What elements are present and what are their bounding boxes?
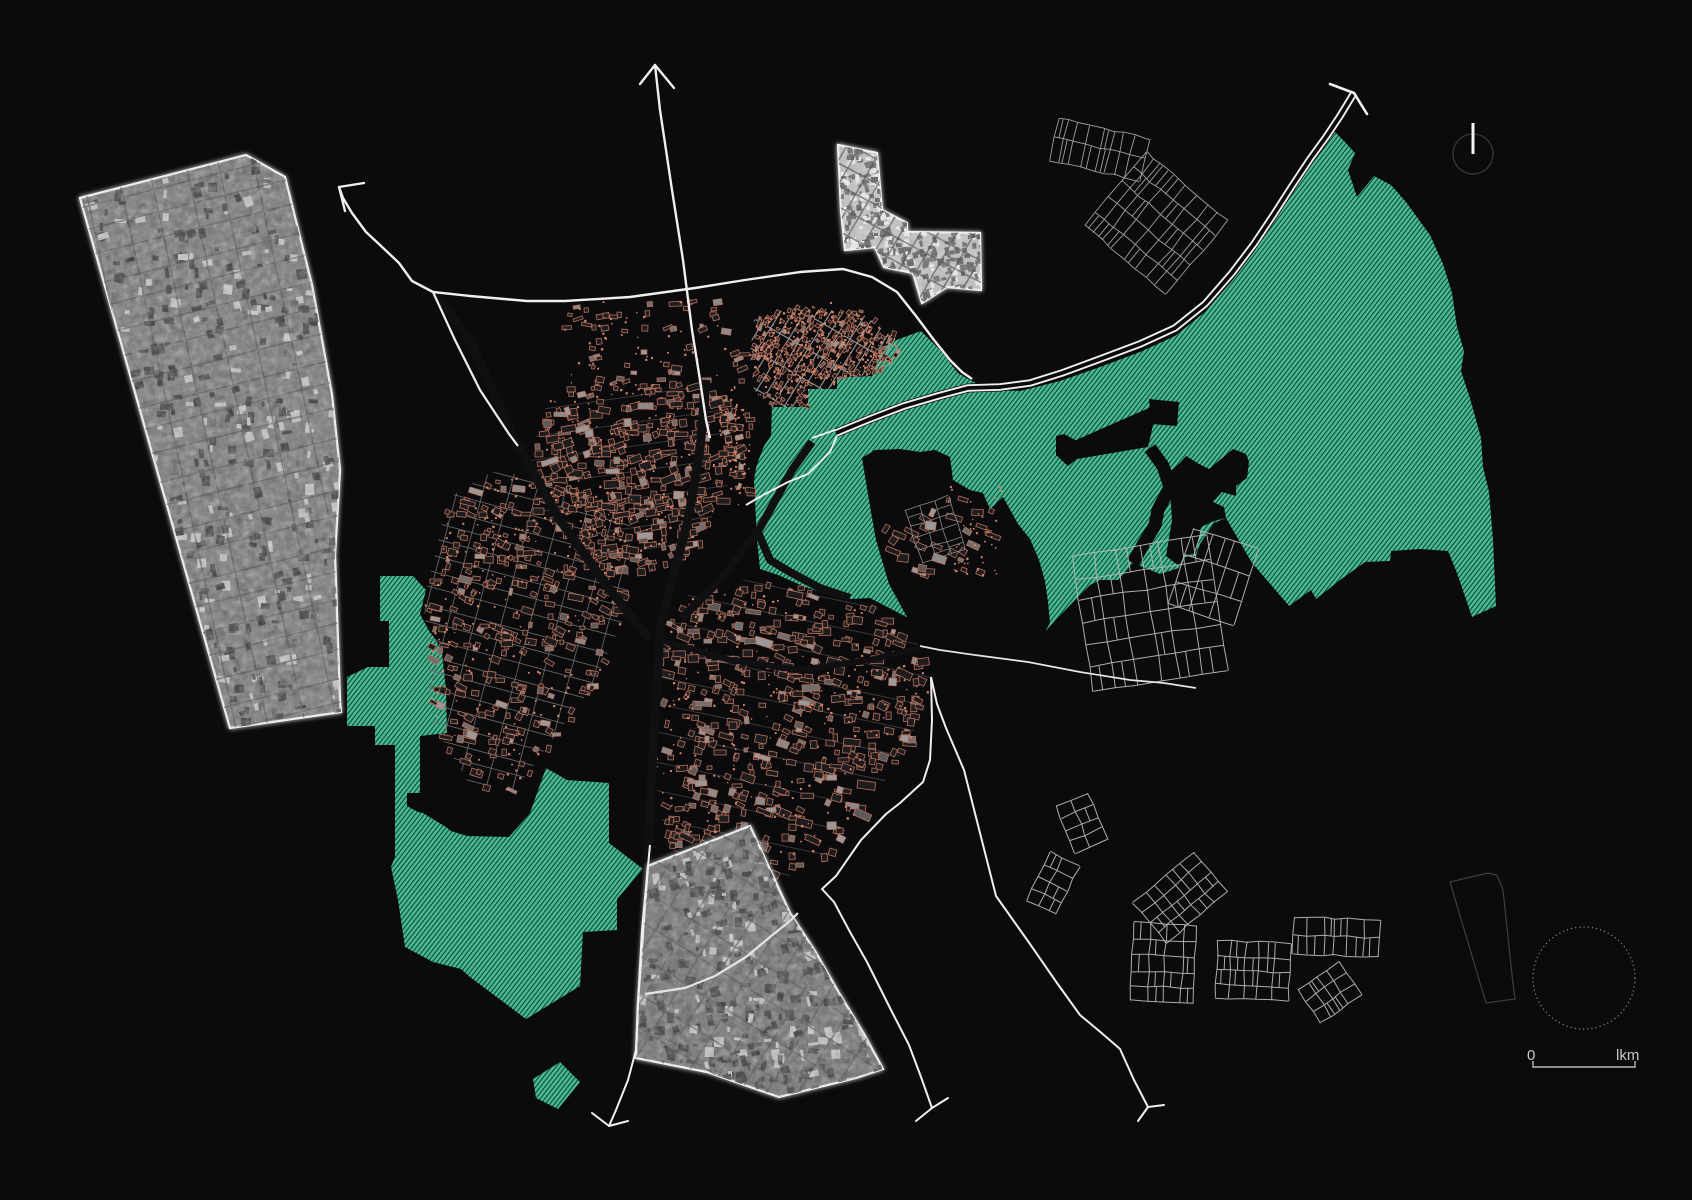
svg-text:0: 0 — [1527, 1047, 1535, 1064]
svg-text:lkm: lkm — [1616, 1047, 1639, 1064]
